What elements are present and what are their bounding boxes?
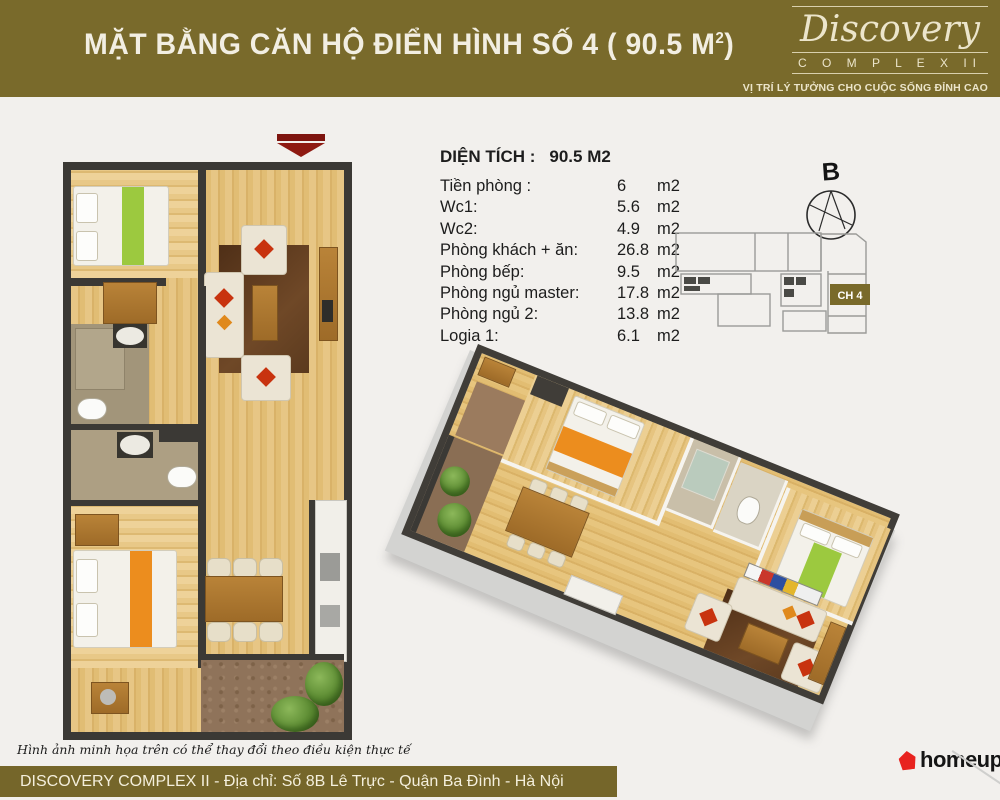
loggia-floor — [201, 660, 344, 732]
plant-icon — [305, 662, 343, 706]
site-key-plan: CH 4 — [670, 226, 876, 338]
coffee-table — [252, 285, 278, 341]
room-label: Logia 1: — [440, 326, 617, 347]
sofa-cushion — [796, 611, 814, 629]
room-label: Tiền phòng : — [440, 176, 617, 197]
dining-chair — [259, 622, 283, 642]
sofa-cushion — [214, 288, 234, 308]
header-banner: MẶT BẰNG CĂN HỘ ĐIỂN HÌNH SỐ 4 ( 90.5 M2… — [0, 0, 1000, 97]
brand-rule-top — [792, 6, 988, 7]
toilet — [167, 466, 197, 488]
dining-chair — [233, 622, 257, 642]
entrance-arrow-bar — [277, 134, 325, 141]
sink — [117, 432, 153, 458]
room-value: 9.5 — [617, 262, 657, 283]
brand-complex-word: C O M P L E X — [798, 56, 954, 70]
brand-name: Discovery — [792, 9, 988, 50]
room-label: Wc2: — [440, 219, 617, 240]
wardrobe-3d — [530, 376, 569, 407]
brand-complex-numeral: II — [963, 56, 982, 70]
dining-chair — [207, 558, 231, 578]
sink-basin — [116, 327, 144, 345]
room-value: 26.8 — [617, 240, 657, 261]
address-bar: DISCOVERY COMPLEX II - Địa chỉ: Số 8B Lê… — [0, 766, 617, 797]
room-label: Phòng bếp: — [440, 262, 617, 283]
toilet — [733, 493, 764, 527]
brand-rule-bottom — [792, 73, 988, 74]
sink-basin — [120, 435, 150, 455]
dining-table — [205, 576, 283, 622]
room-value: 4.9 — [617, 219, 657, 240]
tv — [322, 300, 333, 322]
kitchen-counter — [315, 500, 347, 662]
bath-cabinet — [159, 430, 201, 442]
area-table-heading: DIỆN TÍCH : 90.5 M2 — [440, 147, 720, 167]
brand-rule-mid — [792, 52, 988, 53]
page-title-superscript: 2 — [715, 30, 724, 47]
pillow — [76, 193, 98, 223]
desk-chair — [100, 689, 116, 705]
balcony-3d — [410, 435, 502, 552]
homeup-logo: homeup — [899, 747, 1000, 773]
room-value: 13.8 — [617, 304, 657, 325]
site-unit-label: CH 4 — [837, 290, 863, 302]
area-row: Tiền phòng : 6 m2 — [440, 176, 720, 197]
master-bed — [73, 550, 177, 648]
bed-orange-blanket — [130, 551, 152, 647]
dining-chair — [259, 558, 283, 578]
room-value: 5.6 — [617, 197, 657, 218]
toilet — [77, 398, 107, 420]
room-value: 6 — [617, 176, 657, 197]
bed-green-blanket — [122, 187, 144, 265]
pillow — [606, 414, 641, 440]
pillow — [76, 231, 98, 261]
brand-complex-line: C O M P L E X II — [792, 55, 988, 71]
sofa-cushion — [699, 608, 717, 626]
homeup-logo-text: homeup — [920, 747, 1000, 773]
room-unit: m2 — [657, 197, 689, 218]
wall — [198, 170, 206, 286]
room-label: Wc1: — [440, 197, 617, 218]
dining-chair — [207, 622, 231, 642]
sofa-cushion — [217, 315, 233, 331]
sofa-cushion — [254, 239, 274, 259]
wardrobe — [103, 282, 157, 324]
shower-glass — [681, 449, 730, 501]
sink — [113, 324, 147, 348]
dining-chair — [233, 558, 257, 578]
entrance-arrow-icon — [277, 143, 325, 157]
homeup-logo-icon — [897, 749, 917, 771]
pillow — [76, 559, 98, 593]
room-unit: m2 — [657, 176, 689, 197]
bedroom1-bed — [73, 186, 169, 266]
master-bed-3d — [545, 395, 645, 498]
page-title: MẶT BẰNG CĂN HỘ ĐIỂN HÌNH SỐ 4 ( 90.5 M2… — [84, 28, 734, 62]
page-title-close: ) — [724, 28, 734, 61]
sofa-cushion — [782, 606, 796, 620]
room-label: Phòng ngủ master: — [440, 283, 617, 304]
desk — [91, 682, 129, 714]
room-value: 17.8 — [617, 283, 657, 304]
address-text: DISCOVERY COMPLEX II - Địa chỉ: Số 8B Lê… — [0, 766, 617, 797]
bench — [75, 514, 119, 546]
area-heading-value: 90.5 M2 — [549, 147, 610, 167]
floor-plan-2d — [63, 162, 352, 740]
room-label: Phòng ngủ 2: — [440, 304, 617, 325]
room-value: 6.1 — [617, 326, 657, 347]
disclaimer-text: Hình ảnh minh họa trên có thể thay đổi t… — [17, 742, 411, 757]
bathroom-wc2 — [71, 430, 201, 500]
kitchen-sink — [320, 605, 340, 627]
armchair — [241, 225, 287, 275]
page-title-main: MẶT BẰNG CĂN HỘ ĐIỂN HÌNH SỐ 4 ( 90.5 M — [84, 28, 715, 61]
brand-logo: Discovery C O M P L E X II — [792, 4, 988, 76]
poster: MẶT BẰNG CĂN HỘ ĐIỂN HÌNH SỐ 4 ( 90.5 M2… — [0, 0, 1000, 800]
sofa — [204, 272, 244, 358]
compass-north-label: B — [821, 157, 841, 187]
brand-tagline: VỊ TRÍ LÝ TƯỞNG CHO CUỘC SỐNG ĐỈNH CAO — [728, 82, 988, 94]
tv-console — [319, 247, 338, 341]
plant-icon — [432, 498, 476, 542]
area-row: Wc1: 5.6 m2 — [440, 197, 720, 218]
area-heading-label: DIỆN TÍCH : — [440, 147, 535, 167]
pillow — [572, 401, 607, 427]
pillow — [76, 603, 98, 637]
armchair — [241, 355, 291, 401]
bathroom-wc1 — [71, 324, 149, 426]
stove — [320, 553, 340, 581]
room-label: Phòng khách + ăn: — [440, 240, 617, 261]
sofa-cushion — [256, 367, 276, 387]
